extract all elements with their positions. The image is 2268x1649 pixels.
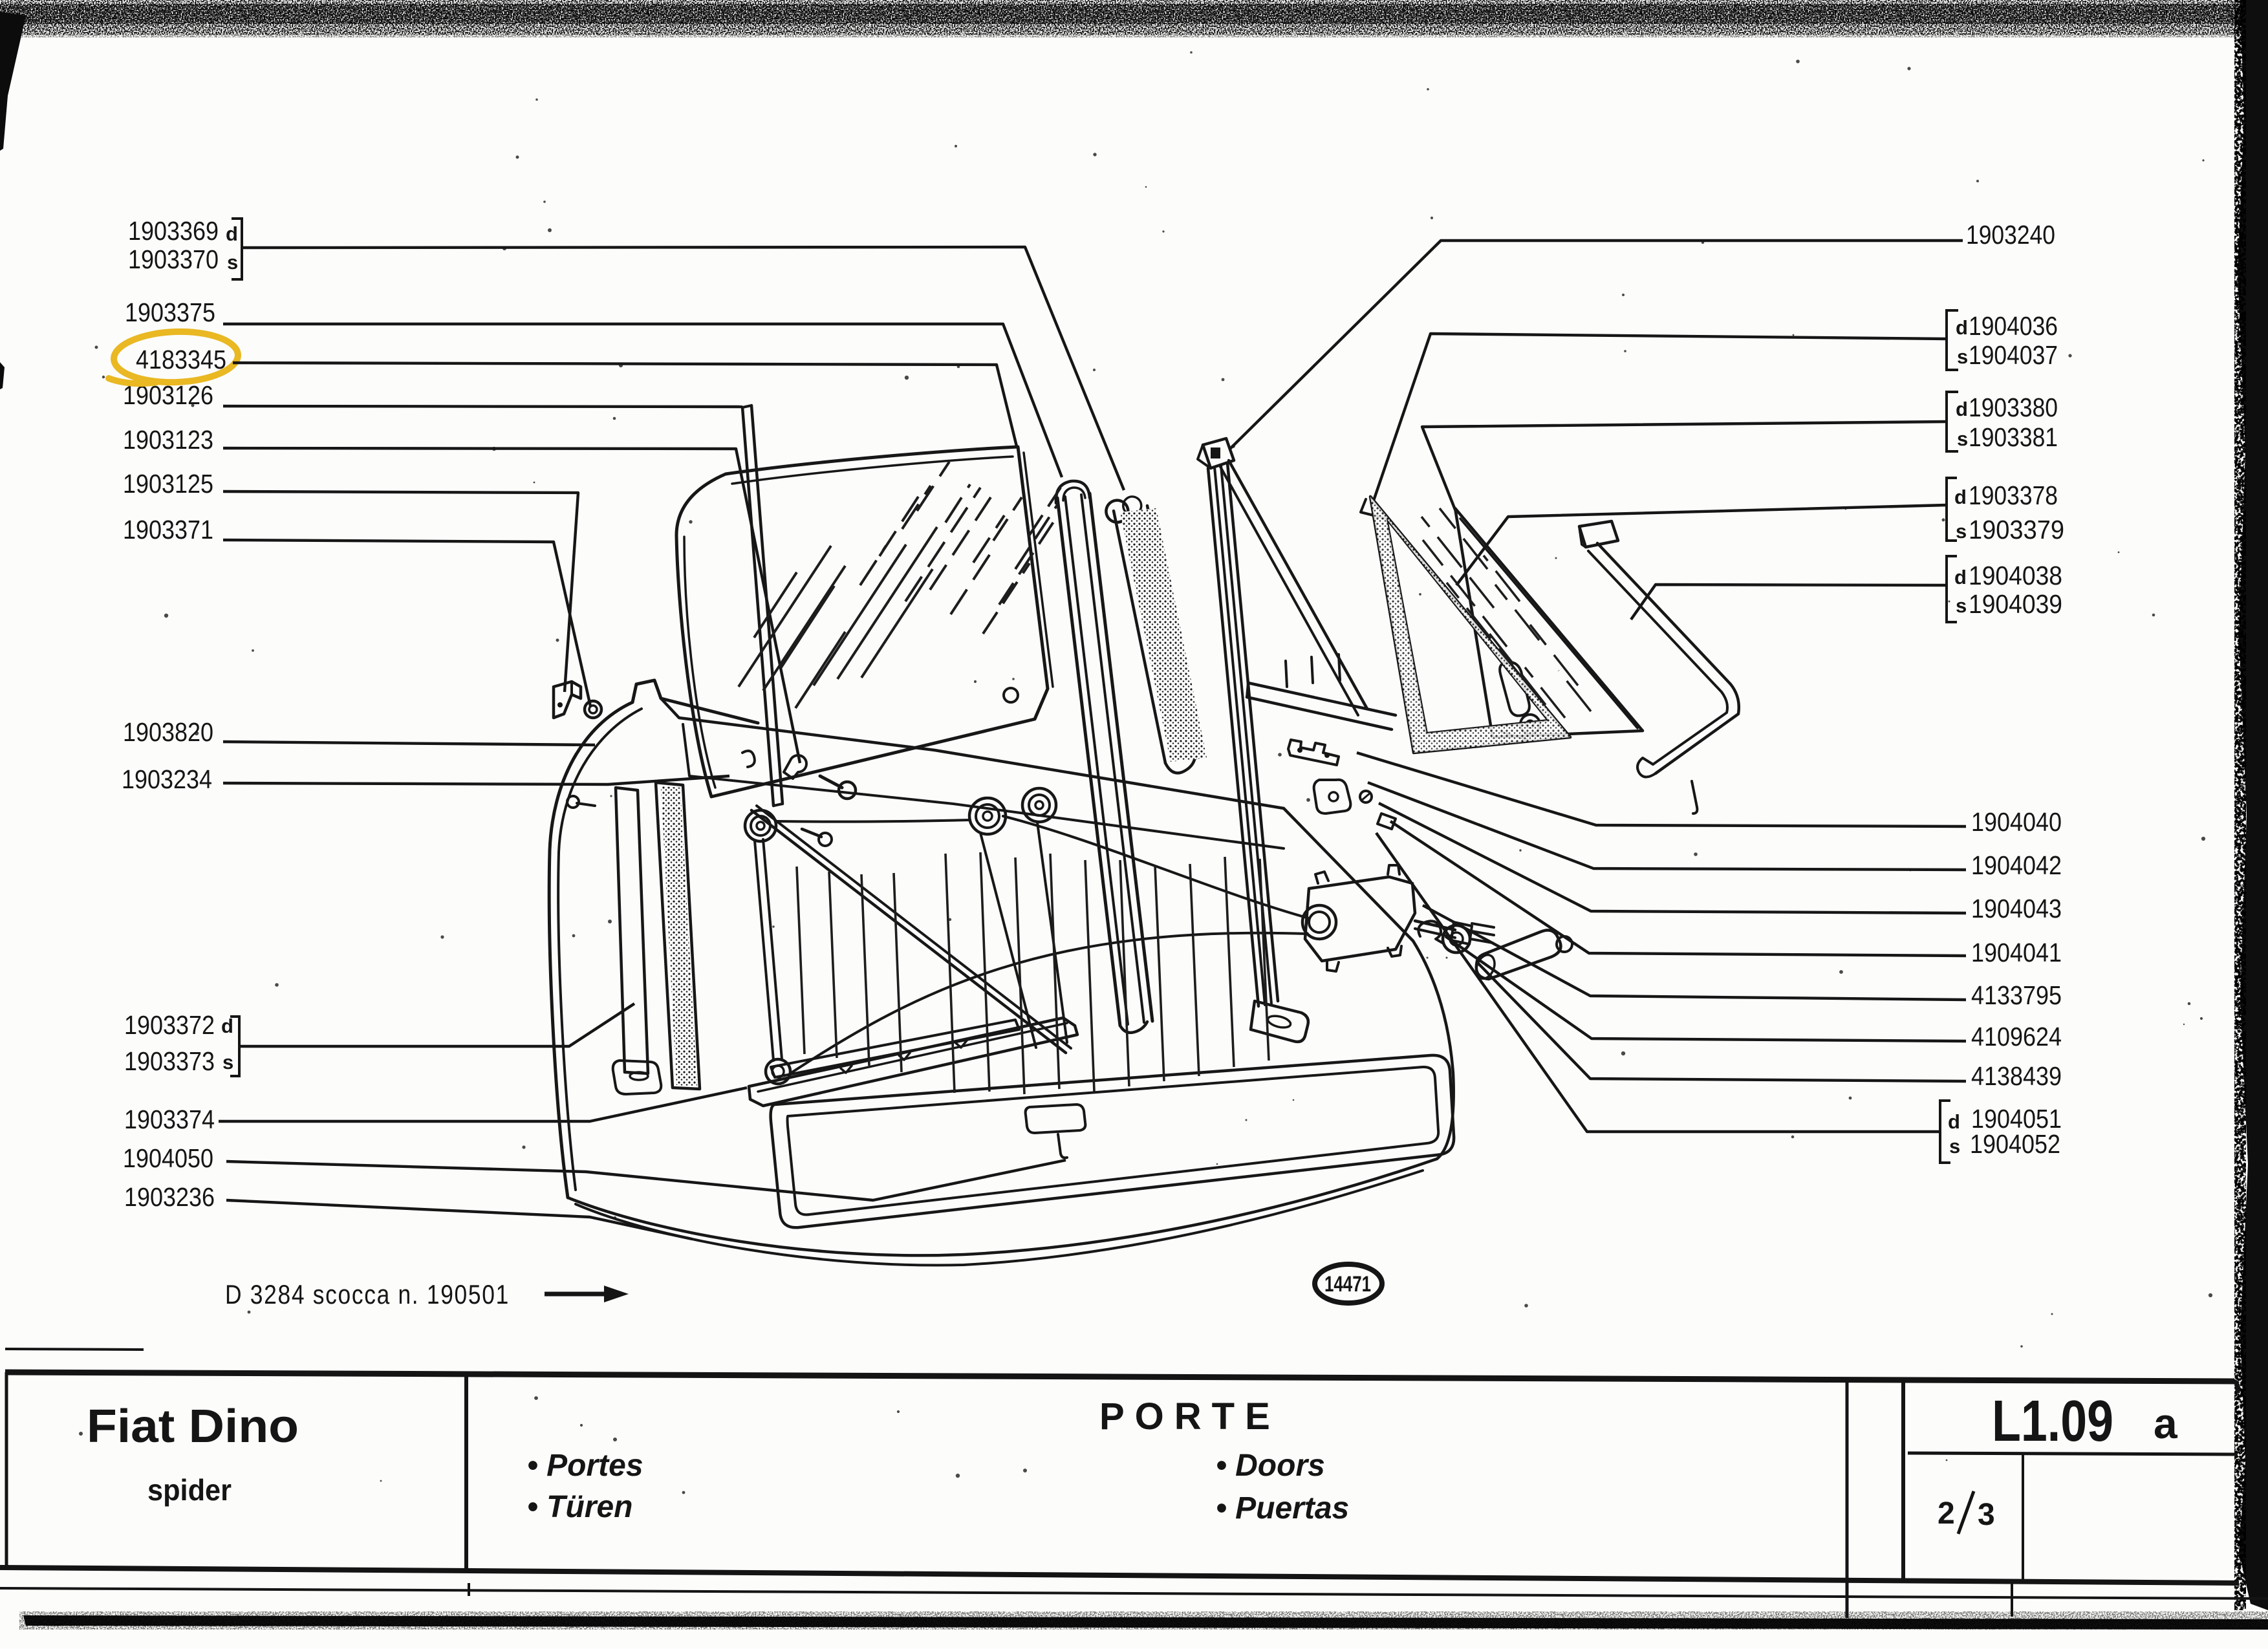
svg-text:1904038: 1904038: [1969, 561, 2062, 590]
svg-text:4183345: 4183345: [136, 345, 226, 374]
svg-text:1904043: 1904043: [1971, 894, 2062, 923]
svg-text:s: s: [227, 251, 238, 274]
svg-text:s: s: [1956, 594, 1967, 617]
svg-text:1904036: 1904036: [1969, 311, 2058, 341]
svg-text:1904050: 1904050: [123, 1143, 213, 1173]
svg-text:a: a: [2154, 1399, 2178, 1447]
svg-text:1904052: 1904052: [1970, 1129, 2060, 1159]
svg-text:1903234: 1903234: [122, 764, 212, 794]
svg-text:d: d: [226, 222, 238, 245]
svg-text:1903370: 1903370: [128, 244, 219, 274]
svg-text:d: d: [1954, 486, 1967, 508]
svg-text:d: d: [221, 1015, 233, 1037]
svg-text:D 3284 scocca n. 190501: D 3284 scocca n. 190501: [225, 1279, 510, 1309]
svg-text:1903379: 1903379: [1969, 515, 2064, 544]
svg-text:2: 2: [1938, 1496, 1955, 1531]
svg-text:d: d: [1948, 1110, 1960, 1133]
svg-text:d: d: [1954, 566, 1967, 588]
svg-text:PORTE: PORTE: [1099, 1396, 1280, 1438]
svg-text:1903371: 1903371: [123, 515, 213, 544]
svg-text:Fiat Dino: Fiat Dino: [87, 1401, 299, 1452]
svg-text:s: s: [1949, 1135, 1960, 1158]
svg-text:d: d: [1956, 316, 1968, 339]
svg-text:• Doors: • Doors: [1216, 1449, 1325, 1483]
svg-text:4109624: 4109624: [1971, 1022, 2062, 1051]
svg-text:1903374: 1903374: [124, 1105, 215, 1134]
svg-text:s: s: [222, 1051, 233, 1073]
svg-text:L1.09: L1.09: [1992, 1389, 2113, 1454]
svg-text:1903381: 1903381: [1969, 422, 2058, 452]
svg-text:1903236: 1903236: [124, 1182, 215, 1212]
svg-text:1904040: 1904040: [1971, 807, 2062, 837]
svg-text:4138439: 4138439: [1971, 1061, 2062, 1091]
svg-text:d: d: [1956, 398, 1968, 420]
svg-text:• Puertas: • Puertas: [1216, 1491, 1349, 1525]
svg-text:• Türen: • Türen: [527, 1490, 632, 1524]
svg-text:1903372: 1903372: [124, 1010, 215, 1040]
svg-text:1904037: 1904037: [1969, 340, 2058, 370]
svg-text:1903123: 1903123: [123, 425, 213, 455]
svg-text:s: s: [1956, 520, 1967, 543]
svg-text:1903125: 1903125: [123, 469, 213, 499]
svg-text:1903369: 1903369: [128, 216, 219, 246]
svg-text:1903820: 1903820: [123, 717, 213, 747]
svg-text:4133795: 4133795: [1971, 980, 2062, 1010]
svg-text:14471: 14471: [1324, 1272, 1371, 1297]
svg-text:s: s: [1957, 427, 1968, 450]
svg-text:1903373: 1903373: [124, 1046, 215, 1076]
svg-text:1903240: 1903240: [1966, 220, 2055, 250]
svg-text:1904041: 1904041: [1971, 938, 2062, 967]
svg-text:• Portes: • Portes: [527, 1449, 643, 1483]
svg-text:3: 3: [1978, 1498, 1995, 1532]
svg-text:1903375: 1903375: [125, 297, 215, 327]
svg-text:1904042: 1904042: [1971, 850, 2062, 880]
svg-text:s: s: [1957, 345, 1968, 368]
svg-text:spider: spider: [147, 1473, 232, 1507]
svg-text:1903378: 1903378: [1969, 480, 2058, 510]
svg-text:1904039: 1904039: [1969, 589, 2062, 619]
svg-text:1903380: 1903380: [1969, 393, 2058, 422]
